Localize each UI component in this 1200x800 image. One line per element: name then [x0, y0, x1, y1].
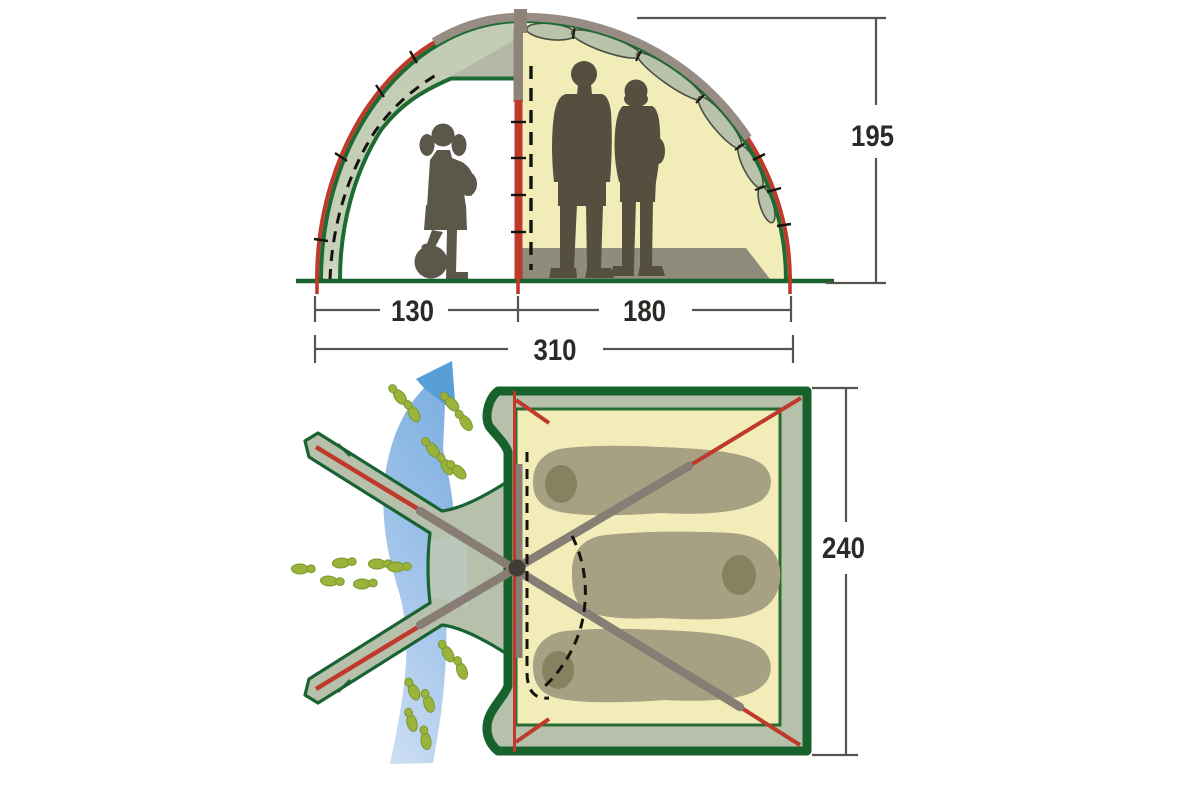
svg-text:180: 180	[623, 295, 666, 328]
svg-text:195: 195	[851, 120, 894, 153]
svg-text:130: 130	[391, 295, 434, 328]
svg-text:310: 310	[534, 334, 577, 367]
svg-text:240: 240	[822, 532, 865, 565]
